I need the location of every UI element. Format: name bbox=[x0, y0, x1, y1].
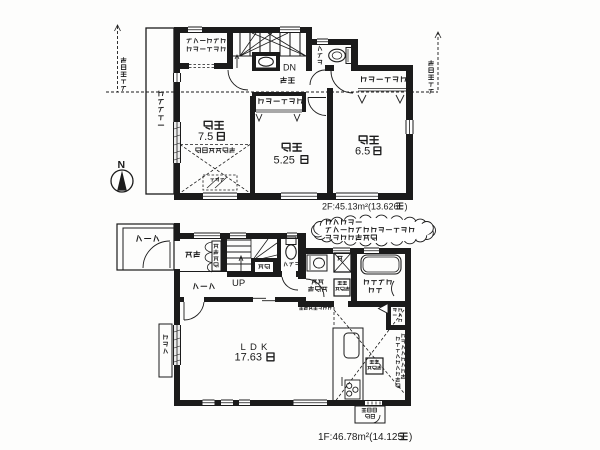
svg-text:7.5: 7.5 bbox=[198, 131, 213, 143]
svg-text:2F:45.13m²(13.626: 2F:45.13m²(13.626 bbox=[322, 202, 399, 212]
svg-text:): ) bbox=[409, 432, 412, 443]
svg-text:17.63: 17.63 bbox=[235, 352, 263, 364]
svg-text:5.25: 5.25 bbox=[274, 155, 295, 167]
svg-text:1F:46.78m²(14.125: 1F:46.78m²(14.125 bbox=[318, 432, 403, 443]
svg-text:6.5: 6.5 bbox=[355, 146, 370, 158]
svg-text:UP: UP bbox=[232, 278, 245, 289]
svg-text:DN: DN bbox=[283, 63, 296, 73]
svg-text:): ) bbox=[405, 202, 408, 212]
svg-text:N: N bbox=[118, 159, 126, 171]
